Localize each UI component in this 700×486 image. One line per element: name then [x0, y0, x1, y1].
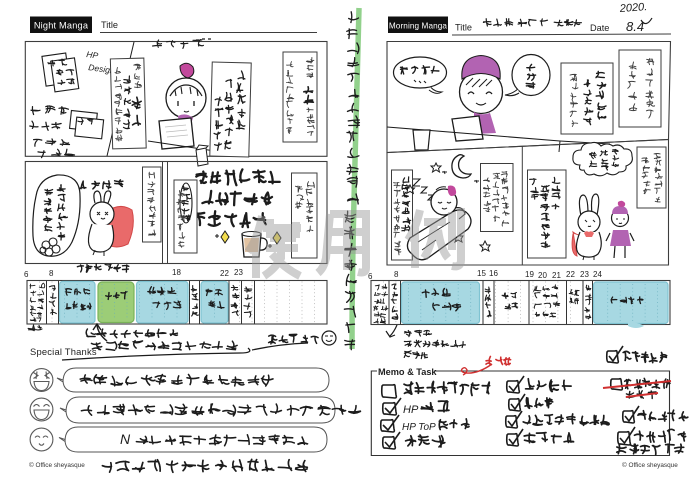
svg-text:23: 23: [580, 270, 589, 279]
svg-text:8: 8: [394, 270, 399, 279]
svg-text:19: 19: [525, 270, 534, 279]
svg-text:15: 15: [477, 269, 486, 278]
svg-text:2020.: 2020.: [618, 1, 647, 15]
svg-text:18: 18: [172, 268, 181, 277]
svg-text:Memo & Task: Memo & Task: [378, 367, 437, 377]
svg-text:N: N: [120, 431, 131, 447]
svg-text:Night Manga: Night Manga: [34, 21, 89, 31]
svg-text:6: 6: [24, 270, 29, 279]
svg-text:16: 16: [489, 269, 498, 278]
svg-text:24: 24: [593, 270, 602, 279]
svg-text:HP ToP: HP ToP: [402, 422, 436, 433]
svg-text:Title: Title: [455, 23, 472, 33]
svg-text:23: 23: [234, 268, 243, 277]
svg-text:22: 22: [220, 269, 229, 278]
svg-text:HP: HP: [86, 49, 99, 61]
svg-text:© Office sheyasque: © Office sheyasque: [29, 461, 85, 469]
svg-text:20: 20: [538, 271, 547, 280]
svg-text:8: 8: [49, 269, 54, 278]
svg-text:Title: Title: [101, 20, 118, 30]
svg-text:Special Thanks: Special Thanks: [30, 346, 97, 357]
svg-text:Morning Manga: Morning Manga: [389, 22, 448, 31]
svg-text:21: 21: [552, 271, 561, 280]
svg-text:22: 22: [566, 270, 575, 279]
svg-text:© Office sheyasque: © Office sheyasque: [622, 461, 678, 469]
svg-text:HP: HP: [403, 404, 419, 416]
svg-text:6: 6: [368, 272, 373, 281]
svg-text:Date: Date: [590, 23, 609, 33]
